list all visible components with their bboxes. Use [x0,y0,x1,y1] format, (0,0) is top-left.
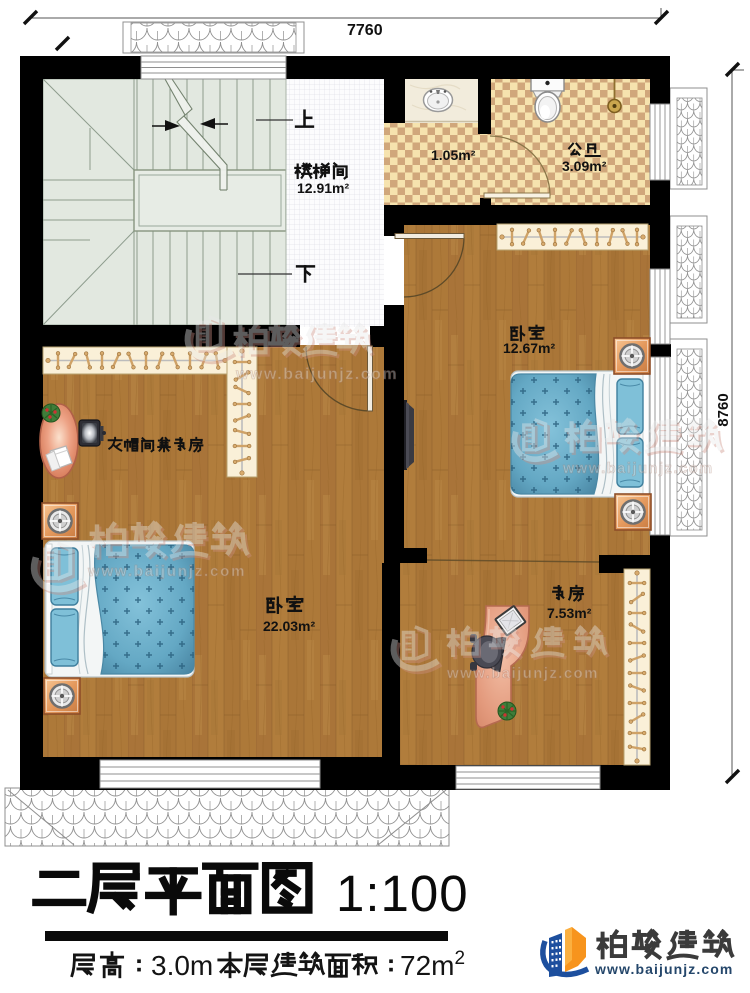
svg-text:3.09m²: 3.09m² [562,158,607,174]
svg-text:1:100: 1:100 [336,865,469,922]
svg-text:www.baijunjz.com: www.baijunjz.com [235,366,398,383]
svg-text:www.baijunjz.com: www.baijunjz.com [446,665,599,682]
svg-text:3.0m: 3.0m [151,950,213,981]
svg-text:1.05m²: 1.05m² [431,147,476,163]
svg-text:7.53m²: 7.53m² [547,605,592,621]
svg-text:www.baijunjz.com: www.baijunjz.com [87,563,246,580]
svg-text:www.baijunjz.com: www.baijunjz.com [562,461,714,477]
svg-text:8760: 8760 [715,393,732,426]
svg-text:12.91m²: 12.91m² [297,180,349,196]
svg-text:7760: 7760 [347,22,383,39]
svg-text:22.03m²: 22.03m² [263,618,315,634]
svg-text:12.67m²: 12.67m² [503,340,555,356]
svg-text:www.baijunjz.com: www.baijunjz.com [594,961,733,977]
